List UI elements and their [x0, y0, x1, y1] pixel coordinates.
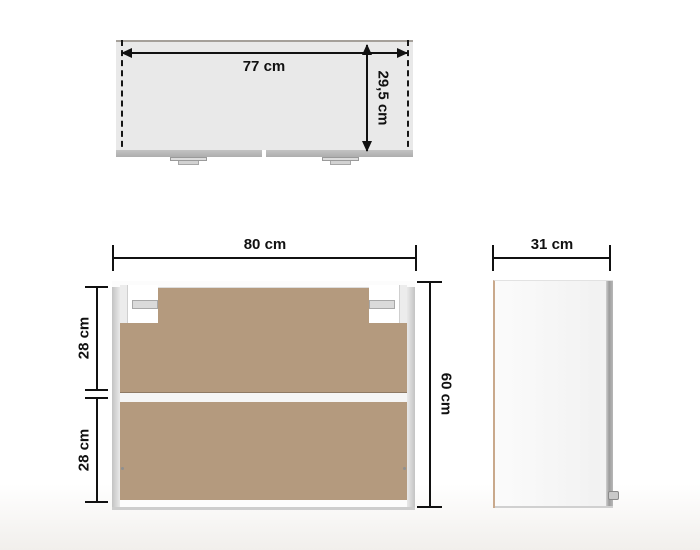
hinge-side-tab	[399, 285, 407, 323]
dimension-label-front-width: 80 cm	[215, 236, 315, 253]
dimension-label-front-height: 60 cm	[438, 373, 455, 416]
cabinet-right-side-board	[407, 287, 415, 507]
hinge-mount-left	[120, 285, 158, 323]
cabinet-dimension-diagram: 77 cm 29,5 cm 80 cm	[0, 0, 700, 550]
handle-foot	[330, 161, 351, 165]
dimension-tick	[417, 281, 442, 283]
front-view-cabinet	[112, 281, 415, 510]
dimension-tick	[112, 245, 114, 271]
dimension-arrow-top-depth	[366, 45, 368, 151]
dimension-line-side-depth	[493, 257, 611, 259]
dimension-tick	[415, 245, 417, 271]
dimension-label-lower-compartment: 28 cm	[76, 429, 93, 472]
shelf-pin-right	[403, 467, 406, 470]
dimension-line-lower-compartment	[96, 398, 98, 502]
dimension-tick	[85, 286, 108, 288]
dimension-tick	[85, 397, 108, 399]
hinge-arm	[369, 300, 395, 309]
cabinet-bottom-board	[120, 500, 407, 507]
side-view-panel	[493, 280, 613, 508]
dimension-tick	[492, 245, 494, 271]
shelf-pin-left	[121, 467, 124, 470]
side-panel-front-edge	[606, 281, 613, 508]
hinge-mount-right	[369, 285, 407, 323]
dimension-tick	[417, 506, 442, 508]
side-view-door-handle	[608, 491, 619, 500]
dimension-label-upper-compartment: 28 cm	[76, 317, 93, 360]
dimension-label-top-width: 77 cm	[214, 58, 314, 75]
top-view-door-gap	[262, 150, 266, 157]
top-view-panel	[116, 40, 413, 150]
dimension-line-upper-compartment	[96, 287, 98, 390]
dimension-label-top-depth: 29,5 cm	[375, 70, 392, 125]
cabinet-middle-shelf	[120, 392, 407, 402]
hinge-arm	[132, 300, 158, 309]
cabinet-bottom-edge	[112, 507, 415, 510]
dimension-tick	[85, 501, 108, 503]
dimension-tick	[85, 389, 108, 391]
dimension-label-side-depth: 31 cm	[502, 236, 602, 253]
side-panel-bottom-edge	[495, 506, 613, 508]
cabinet-left-side-board	[112, 287, 120, 507]
dimension-tick	[609, 245, 611, 271]
dimension-line-front-height	[429, 282, 431, 507]
handle-foot	[178, 161, 199, 165]
dimension-line-front-width	[113, 257, 417, 259]
hinge-side-tab	[120, 285, 128, 323]
